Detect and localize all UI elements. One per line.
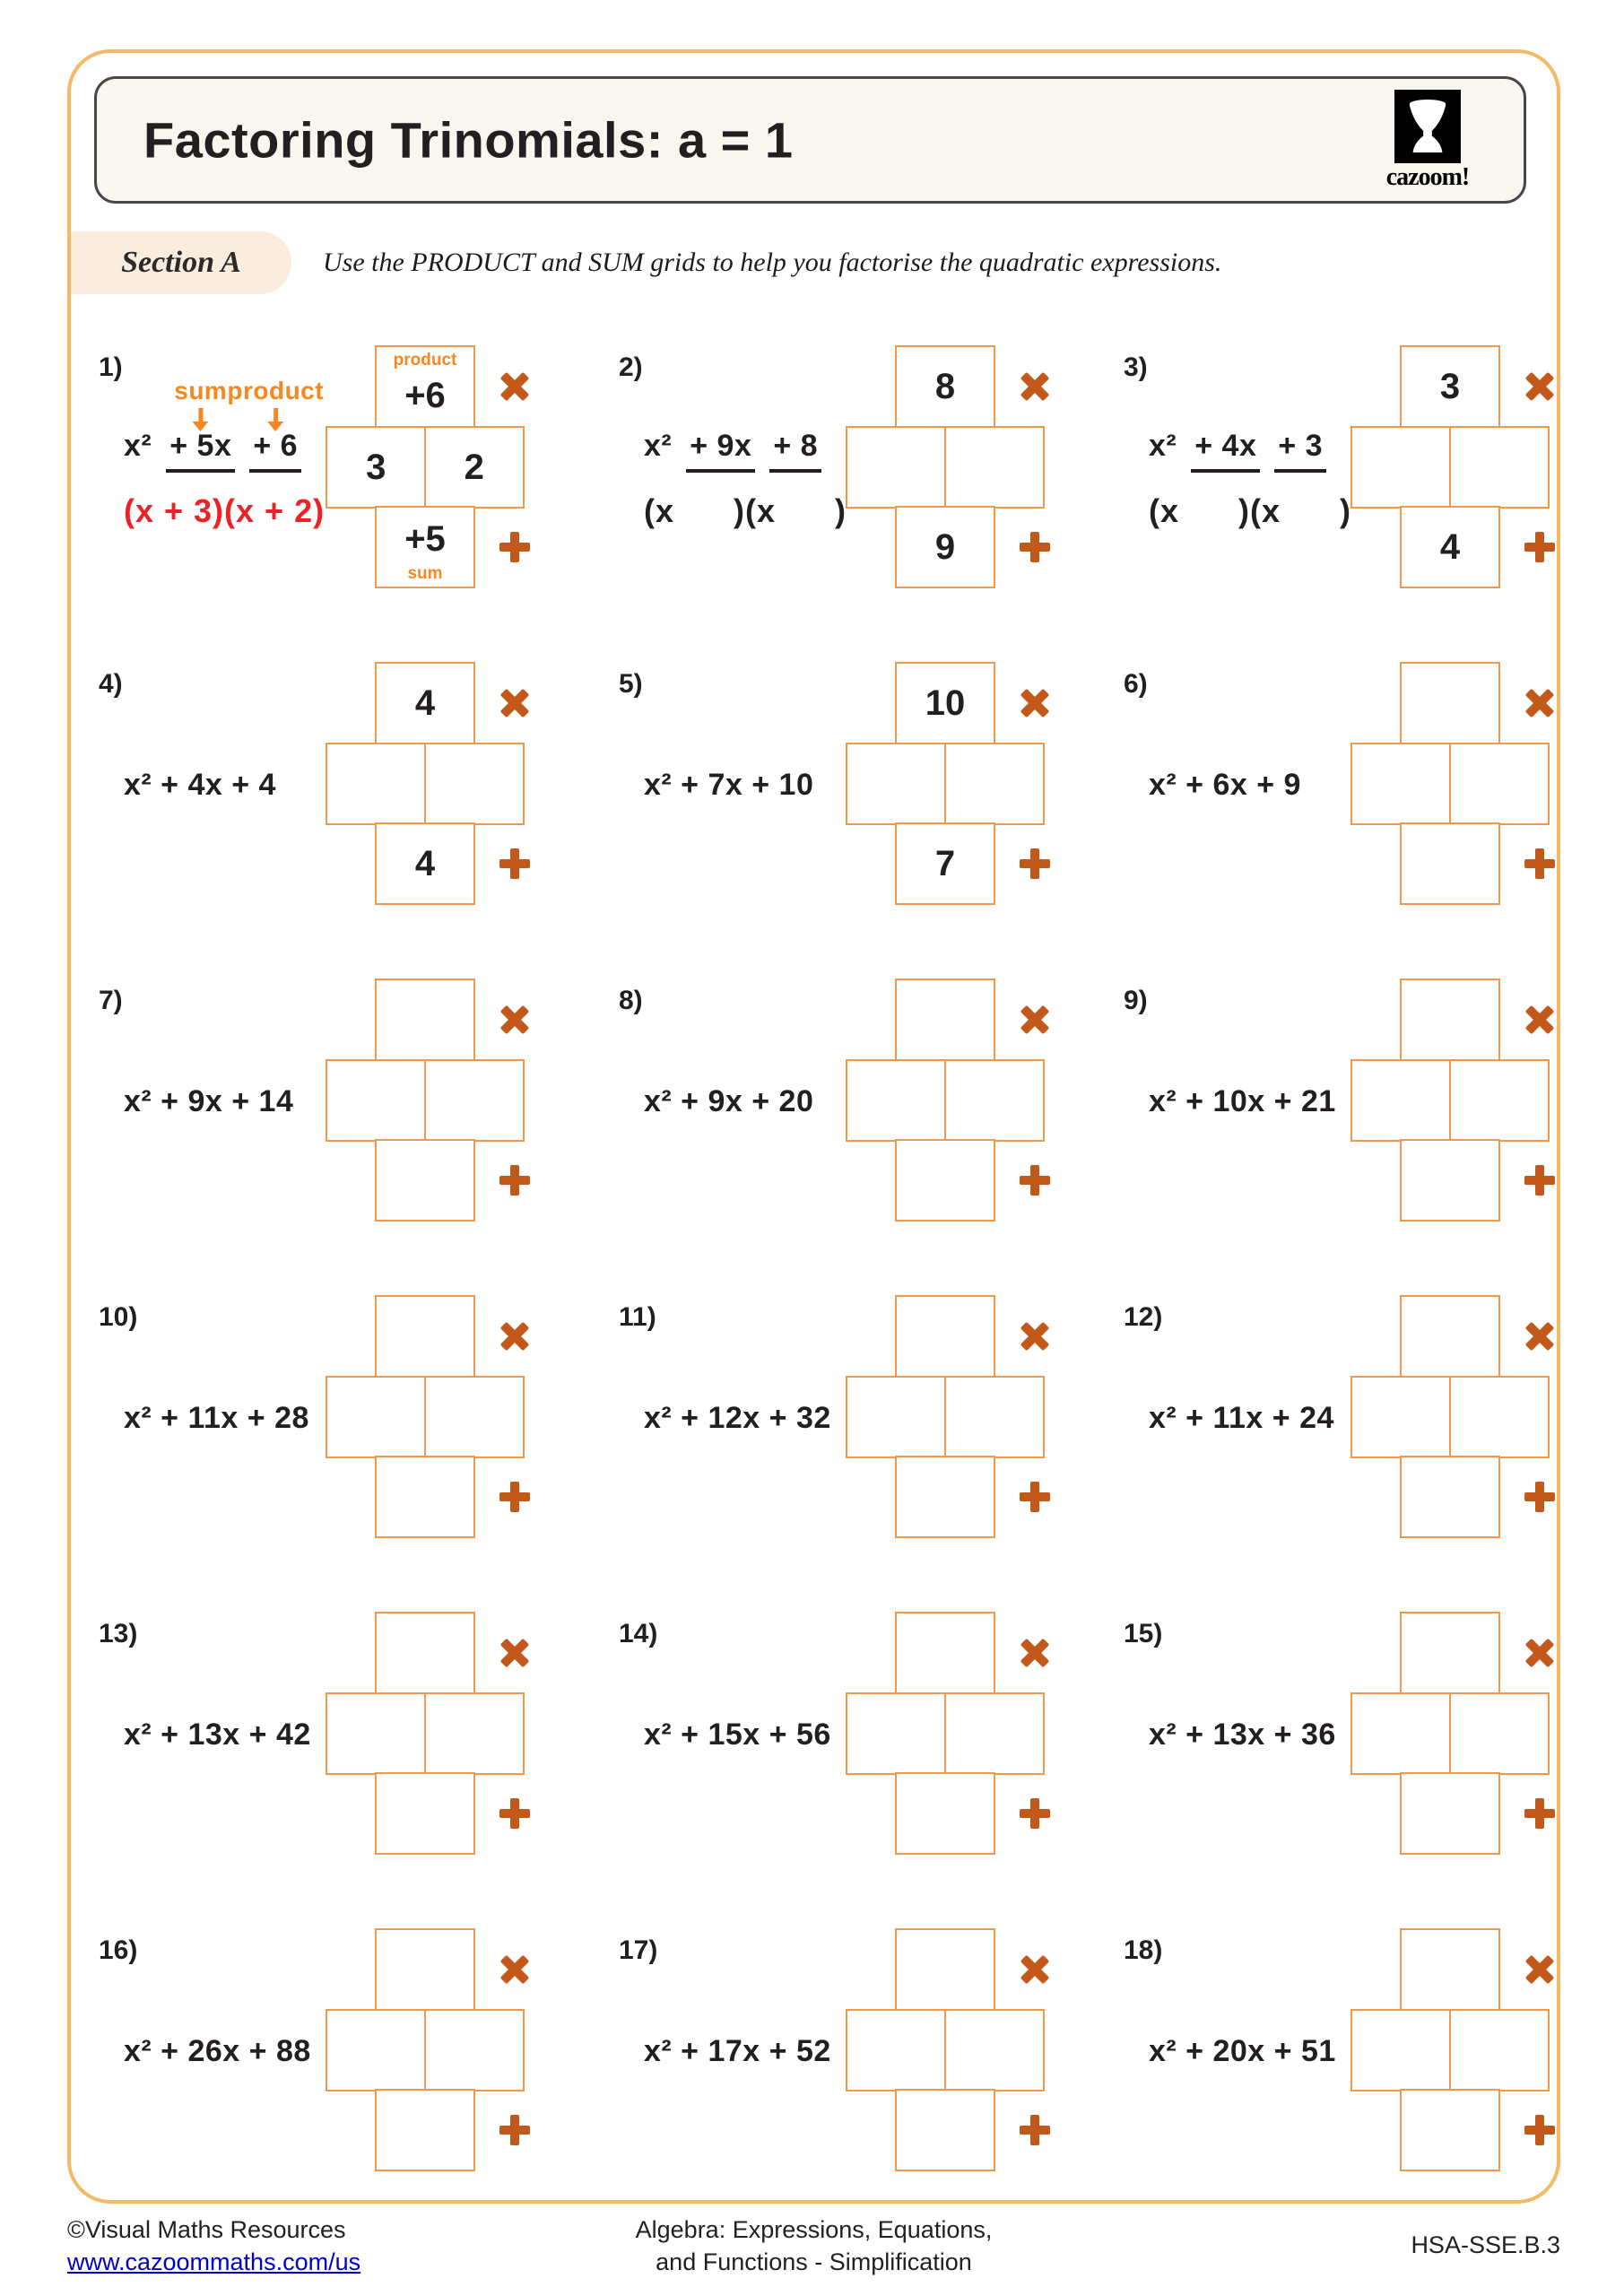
problem-cell: 16) x² + 26x + 88	[99, 1910, 619, 2227]
product-value: 4	[415, 685, 435, 721]
factor-cell-left[interactable]	[326, 1692, 426, 1775]
product-cell[interactable]: 3	[1400, 345, 1500, 428]
plus-icon	[1524, 848, 1556, 880]
factor-right-value: 2	[465, 449, 484, 485]
problem-cell: 15) x² + 13x + 36	[1124, 1594, 1559, 1910]
multiply-icon	[1524, 1320, 1556, 1352]
plus-icon	[1524, 531, 1556, 563]
expression-term: + 3	[1274, 429, 1326, 473]
expression-text: x² + 10x + 21	[1149, 1084, 1336, 1118]
footer-topic: Algebra: Expressions, Equations, and Fun…	[636, 2213, 993, 2278]
factor-cell-left[interactable]	[326, 743, 426, 825]
factor-cell-right[interactable]	[944, 1692, 1045, 1775]
sum-cell[interactable]	[375, 1456, 475, 1538]
problem-cell: 9) x² + 10x + 21	[1124, 961, 1559, 1277]
expression-text: x² + 7x + 10	[644, 768, 813, 802]
factor-cell-left[interactable]	[846, 1059, 946, 1142]
product-cell[interactable]: 4	[375, 662, 475, 744]
sum-value: 4	[1440, 529, 1460, 565]
expression-text: x² + 9x + 20	[644, 1084, 813, 1118]
product-sum-grid: 10 7	[845, 662, 1046, 905]
factor-cell-left[interactable]	[326, 2009, 426, 2092]
multiply-icon	[1019, 1004, 1051, 1036]
problem-number: 3)	[1124, 352, 1148, 383]
problem-number: 6)	[1124, 669, 1148, 700]
factor-left-value: 3	[366, 449, 386, 485]
product-cell[interactable]	[375, 1928, 475, 2011]
plus-icon	[1019, 531, 1051, 563]
problem-number: 15)	[1124, 1619, 1162, 1649]
multiply-icon	[1524, 687, 1556, 719]
problem-expression: x² + 26x + 88	[124, 2034, 311, 2069]
factor-cell-right[interactable]	[944, 426, 1045, 509]
problem-cell: 5) x² + 7x + 10 10 7	[619, 644, 1124, 961]
expression-text: x² + 6x + 9	[1149, 768, 1301, 802]
expression-text: x² + 11x + 28	[124, 1401, 309, 1435]
factor-cell-left[interactable]	[846, 1692, 946, 1775]
sum-cell[interactable]	[895, 1456, 995, 1538]
problem-expression: x² + 10x + 21	[1149, 1084, 1336, 1119]
topic-line-2: and Functions - Simplification	[636, 2246, 993, 2278]
problem-expression: x² + 12x + 32	[644, 1401, 831, 1436]
djembe-drum-icon	[1394, 90, 1461, 163]
problem-expression: x² + 11x + 24	[1149, 1401, 1334, 1436]
problem-text-block: x² + 13x + 36	[1149, 1718, 1336, 1752]
problem-expression: x² + 6x + 9	[1149, 768, 1301, 803]
expression-term-text: x²	[124, 429, 152, 463]
expression-text: x² + 12x + 32	[644, 1401, 831, 1435]
product-cell[interactable]	[1400, 1928, 1500, 2011]
problem-expression: x² + 9x + 20	[644, 1084, 813, 1119]
factor-cell-left[interactable]: 3	[326, 426, 426, 509]
problem-cell: 14) x² + 15x + 56	[619, 1594, 1124, 1910]
problem-text-block: x² + 20x + 51	[1149, 2034, 1336, 2069]
problem-expression: x² + 11x + 28	[124, 1401, 309, 1436]
problem-cell: 13) x² + 13x + 42	[99, 1594, 619, 1910]
factor-cell-right[interactable]	[424, 1692, 525, 1775]
sum-cell[interactable]: +5 sum	[375, 506, 475, 588]
factor-cell-right[interactable]	[944, 2009, 1045, 2092]
expression-term-text: + 3	[1278, 429, 1323, 463]
problem-text-block: x² + 9x + 14	[124, 1084, 293, 1119]
product-value: +6	[404, 369, 446, 422]
problem-number: 16)	[99, 1935, 137, 1966]
factor-cell-right[interactable]	[1449, 2009, 1550, 2092]
expression-text: x² + 4x + 4	[124, 768, 276, 802]
sum-cell[interactable]	[895, 1772, 995, 1855]
factor-cell-left[interactable]	[1350, 743, 1451, 825]
expression-term-text: + 6	[253, 429, 298, 463]
problem-cell: 1) x²+ 5xsum+ 6product (x + 3)(x + 2) pr…	[99, 327, 619, 644]
problem-text-block: x² + 9x + 20	[644, 1084, 813, 1119]
arrow-down-icon	[274, 408, 278, 422]
problem-expression: x² + 20x + 51	[1149, 2034, 1336, 2069]
problem-text-block: x² + 15x + 56	[644, 1718, 831, 1752]
factor-cell-right[interactable]	[424, 1376, 525, 1458]
problem-expression: x² + 15x + 56	[644, 1718, 831, 1752]
problem-cell: 12) x² + 11x + 24	[1124, 1277, 1559, 1594]
product-cell[interactable]: 10	[895, 662, 995, 744]
expression-term: x²	[124, 429, 152, 464]
problem-number: 5)	[619, 669, 643, 700]
factor-cell-left[interactable]	[1350, 426, 1451, 509]
plus-icon	[1524, 2114, 1556, 2146]
factor-cell-left[interactable]	[326, 1059, 426, 1142]
problem-number: 18)	[1124, 1935, 1162, 1966]
sum-cell[interactable]: 7	[895, 822, 995, 905]
problem-number: 11)	[619, 1302, 656, 1333]
problem-cell: 7) x² + 9x + 14	[99, 961, 619, 1277]
factor-cell-right[interactable]	[944, 1059, 1045, 1142]
factor-cell-left[interactable]	[1350, 1059, 1451, 1142]
product-cell[interactable]: product +6	[375, 345, 475, 428]
multiply-icon	[499, 687, 531, 719]
plus-icon	[1524, 1797, 1556, 1830]
page-title: Factoring Trinomials: a = 1	[143, 111, 794, 170]
product-sum-grid: 3 4	[1350, 345, 1550, 588]
plus-icon	[1019, 1797, 1051, 1830]
problem-expression: x² + 17x + 52	[644, 2034, 831, 2069]
problem-number: 1)	[99, 352, 123, 383]
worksheet-header: Factoring Trinomials: a = 1 cazoom!	[94, 76, 1526, 204]
factor-cell-left[interactable]	[846, 1376, 946, 1458]
expression-text: x² + 26x + 88	[124, 2034, 311, 2068]
problem-text-block: x² + 17x + 52	[644, 2034, 831, 2069]
product-cell[interactable]	[895, 1295, 995, 1378]
footer-attribution: ©Visual Maths Resources www.cazoommaths.…	[67, 2213, 360, 2278]
section-instruction: Use the PRODUCT and SUM grids to help yo…	[323, 248, 1221, 278]
expression-term-text: + 4x	[1194, 429, 1256, 463]
expression-text: x² + 9x + 14	[124, 1084, 293, 1118]
annotation-spacer	[1149, 377, 1351, 429]
plus-icon	[1019, 1164, 1051, 1196]
answer-template[interactable]: (x )(x )	[644, 492, 847, 530]
problem-number: 7)	[99, 986, 123, 1016]
annotation-label: sum	[174, 378, 227, 404]
product-cell[interactable]	[375, 1295, 475, 1378]
sum-value: 4	[415, 846, 435, 882]
sum-cell[interactable]	[1400, 1456, 1500, 1538]
problem-expression: x²+ 5xsum+ 6product	[124, 429, 325, 473]
product-cell[interactable]	[1400, 1612, 1500, 1694]
problem-cell: 17) x² + 17x + 52	[619, 1910, 1124, 2227]
problem-expression: x²+ 4x+ 3	[1149, 429, 1351, 473]
product-cell[interactable]	[375, 978, 475, 1061]
product-cell[interactable]	[375, 1612, 475, 1694]
problem-number: 10)	[99, 1302, 137, 1333]
product-cell[interactable]	[1400, 1295, 1500, 1378]
factor-cell-right[interactable]: 2	[424, 426, 525, 509]
sum-grid-label: sum	[407, 565, 442, 582]
factor-cell-right[interactable]	[1449, 426, 1550, 509]
sum-value: 9	[935, 529, 955, 565]
product-sum-grid	[845, 1295, 1046, 1538]
factor-cell-left[interactable]	[846, 426, 946, 509]
product-cell[interactable]	[895, 1612, 995, 1694]
expression-text: x² + 17x + 52	[644, 2034, 831, 2068]
sum-cell[interactable]: 4	[375, 822, 475, 905]
plus-icon	[1019, 848, 1051, 880]
expression-term: x²	[644, 429, 672, 464]
sum-cell[interactable]	[375, 1139, 475, 1222]
arrow-down-icon	[198, 408, 203, 422]
problem-cell: 18) x² + 20x + 51	[1124, 1910, 1559, 2227]
annotation-sum: sum	[174, 378, 227, 422]
problem-text-block: x² + 11x + 28	[124, 1401, 309, 1436]
factor-cell-left[interactable]	[846, 2009, 946, 2092]
problem-number: 13)	[99, 1619, 137, 1649]
problem-expression: x²+ 9x+ 8	[644, 429, 847, 473]
multiply-icon	[499, 1953, 531, 1986]
product-sum-grid	[845, 978, 1046, 1222]
factor-cell-right[interactable]	[1449, 1692, 1550, 1775]
factor-cell-left[interactable]	[1350, 1376, 1451, 1458]
sum-cell[interactable]	[1400, 822, 1500, 905]
page-footer: ©Visual Maths Resources www.cazoommaths.…	[67, 2213, 1560, 2285]
multiply-icon	[499, 1637, 531, 1669]
problem-cell: 6) x² + 6x + 9	[1124, 644, 1559, 961]
product-sum-grid	[325, 1928, 525, 2171]
multiply-icon	[1524, 1637, 1556, 1669]
multiply-icon	[499, 370, 531, 403]
product-sum-grid	[325, 1295, 525, 1538]
multiply-icon	[1019, 1953, 1051, 1986]
problem-cell: 10) x² + 11x + 28	[99, 1277, 619, 1594]
multiply-icon	[499, 1320, 531, 1352]
sum-value: 7	[935, 846, 955, 882]
problem-number: 8)	[619, 986, 643, 1016]
problems-grid: 1) x²+ 5xsum+ 6product (x + 3)(x + 2) pr…	[99, 327, 1559, 2227]
sum-cell[interactable]: 9	[895, 506, 995, 588]
product-cell[interactable]	[1400, 978, 1500, 1061]
problem-text-block: x² + 7x + 10	[644, 768, 813, 803]
website-link[interactable]: www.cazoommaths.com/us	[67, 2246, 360, 2278]
expression-text: x² + 15x + 56	[644, 1718, 831, 1752]
expression-term: + 5xsum	[166, 429, 235, 473]
factor-cell-right[interactable]	[1449, 743, 1550, 825]
multiply-icon	[1524, 1953, 1556, 1986]
problem-cell: 8) x² + 9x + 20	[619, 961, 1124, 1277]
product-sum-grid: 4 4	[325, 662, 525, 905]
factor-cell-left[interactable]	[326, 1376, 426, 1458]
problem-cell: 4) x² + 4x + 4 4 4	[99, 644, 619, 961]
product-sum-grid	[1350, 978, 1550, 1222]
expression-term-text: + 5x	[169, 429, 231, 463]
expression-text: x² + 13x + 36	[1149, 1718, 1336, 1752]
sum-cell[interactable]	[1400, 2089, 1500, 2171]
factor-cell-right[interactable]	[944, 1376, 1045, 1458]
product-sum-grid	[325, 1612, 525, 1855]
product-sum-grid: 8 9	[845, 345, 1046, 588]
multiply-icon	[1524, 370, 1556, 403]
factor-cell-left[interactable]	[1350, 2009, 1451, 2092]
problem-number: 12)	[1124, 1302, 1162, 1333]
plus-icon	[499, 1797, 531, 1830]
problem-text-block: x²+ 9x+ 8 (x )(x )	[644, 377, 847, 530]
plus-icon	[499, 1164, 531, 1196]
expression-term-text: x²	[644, 429, 672, 463]
multiply-icon	[1524, 1004, 1556, 1036]
product-value: 8	[935, 369, 955, 404]
problem-expression: x² + 7x + 10	[644, 768, 813, 803]
expression-term-text: x²	[1149, 429, 1177, 463]
sum-cell[interactable]	[375, 1772, 475, 1855]
multiply-icon	[1019, 1637, 1051, 1669]
multiply-icon	[1019, 687, 1051, 719]
product-value: 3	[1440, 369, 1460, 404]
factor-cell-right[interactable]	[424, 1059, 525, 1142]
multiply-icon	[1019, 1320, 1051, 1352]
product-sum-grid	[845, 1928, 1046, 2171]
product-sum-grid	[1350, 1928, 1550, 2171]
problem-number: 4)	[99, 669, 123, 700]
problem-expression: x² + 4x + 4	[124, 768, 276, 803]
expression-term: + 8	[769, 429, 821, 473]
multiply-icon	[499, 1004, 531, 1036]
annotation-label: product	[227, 378, 324, 404]
problem-text-block: x²+ 5xsum+ 6product (x + 3)(x + 2)	[124, 377, 325, 530]
sum-cell[interactable]	[375, 2089, 475, 2171]
annotation-spacer	[644, 377, 847, 429]
product-sum-grid: product +6 3 2 +5 sum	[325, 345, 525, 588]
expression-text: x² + 20x + 51	[1149, 2034, 1336, 2068]
product-sum-grid	[1350, 1295, 1550, 1538]
plus-icon	[1524, 1481, 1556, 1513]
problem-text-block: x² + 11x + 24	[1149, 1401, 1334, 1436]
problem-number: 2)	[619, 352, 643, 383]
answer-template[interactable]: (x )(x )	[1149, 492, 1351, 530]
copyright-text: ©Visual Maths Resources	[67, 2213, 360, 2246]
multiply-icon	[1019, 370, 1051, 403]
problem-text-block: x² + 13x + 42	[124, 1718, 311, 1752]
expression-term-text: + 8	[773, 429, 818, 463]
plus-icon	[499, 2114, 531, 2146]
factor-cell-right[interactable]	[424, 2009, 525, 2092]
problem-cell: 2) x²+ 9x+ 8 (x )(x ) 8	[619, 327, 1124, 644]
problem-number: 14)	[619, 1619, 657, 1649]
expression-term: + 9x	[686, 429, 755, 473]
topic-line-1: Algebra: Expressions, Equations,	[636, 2213, 993, 2246]
annotation-product: product	[227, 378, 324, 422]
sum-cell[interactable]	[895, 2089, 995, 2171]
product-sum-grid	[1350, 1612, 1550, 1855]
sum-cell[interactable]: 4	[1400, 506, 1500, 588]
problem-cell: 3) x²+ 4x+ 3 (x )(x ) 3	[1124, 327, 1559, 644]
factor-cell-right[interactable]	[944, 743, 1045, 825]
section-label: Section A	[121, 246, 241, 280]
problem-expression: x² + 13x + 42	[124, 1718, 311, 1752]
expression-term: + 4x	[1191, 429, 1260, 473]
problem-cell: 11) x² + 12x + 32	[619, 1277, 1124, 1594]
problem-expression: x² + 9x + 14	[124, 1084, 293, 1119]
factor-cell-right[interactable]	[424, 743, 525, 825]
sum-cell[interactable]	[1400, 1772, 1500, 1855]
section-a-pill: Section A	[71, 231, 291, 294]
product-cell[interactable]	[895, 978, 995, 1061]
factor-cell-right[interactable]	[1449, 1059, 1550, 1142]
problem-expression: x² + 13x + 36	[1149, 1718, 1336, 1752]
problem-number: 9)	[1124, 986, 1148, 1016]
product-cell[interactable]	[1400, 662, 1500, 744]
sum-value: +5	[404, 512, 446, 565]
standard-code: HSA-SSE.B.3	[1411, 2231, 1560, 2259]
problem-text-block: x² + 26x + 88	[124, 2034, 311, 2069]
problem-text-block: x² + 4x + 4	[124, 768, 276, 803]
sum-cell[interactable]	[1400, 1139, 1500, 1222]
product-grid-label: product	[394, 352, 457, 369]
factor-cell-left[interactable]	[846, 743, 946, 825]
plus-icon	[1019, 2114, 1051, 2146]
logo-text: cazoom!	[1369, 163, 1486, 192]
product-sum-grid	[1350, 662, 1550, 905]
product-sum-grid	[845, 1612, 1046, 1855]
expression-text: x² + 13x + 42	[124, 1718, 311, 1752]
problem-text-block: x²+ 4x+ 3 (x )(x )	[1149, 377, 1351, 530]
expression-text: x² + 11x + 24	[1149, 1401, 1334, 1435]
factor-cell-left[interactable]	[1350, 1692, 1451, 1775]
expression-term: + 6product	[249, 429, 301, 473]
plus-icon	[499, 848, 531, 880]
plus-icon	[1524, 1164, 1556, 1196]
problem-text-block: x² + 10x + 21	[1149, 1084, 1336, 1119]
worked-answer: (x + 3)(x + 2)	[124, 492, 325, 530]
product-cell[interactable]: 8	[895, 345, 995, 428]
problem-number: 17)	[619, 1935, 657, 1966]
plus-icon	[499, 1481, 531, 1513]
cazoom-logo: cazoom!	[1369, 90, 1486, 192]
product-value: 10	[925, 685, 966, 721]
expression-term-text: + 9x	[690, 429, 751, 463]
problem-text-block: x² + 12x + 32	[644, 1401, 831, 1436]
factor-cell-right[interactable]	[1449, 1376, 1550, 1458]
plus-icon	[1019, 1481, 1051, 1513]
problem-text-block: x² + 6x + 9	[1149, 768, 1301, 803]
product-cell[interactable]	[895, 1928, 995, 2011]
plus-icon	[499, 531, 531, 563]
expression-term: x²	[1149, 429, 1177, 464]
sum-cell[interactable]	[895, 1139, 995, 1222]
product-sum-grid	[325, 978, 525, 1222]
